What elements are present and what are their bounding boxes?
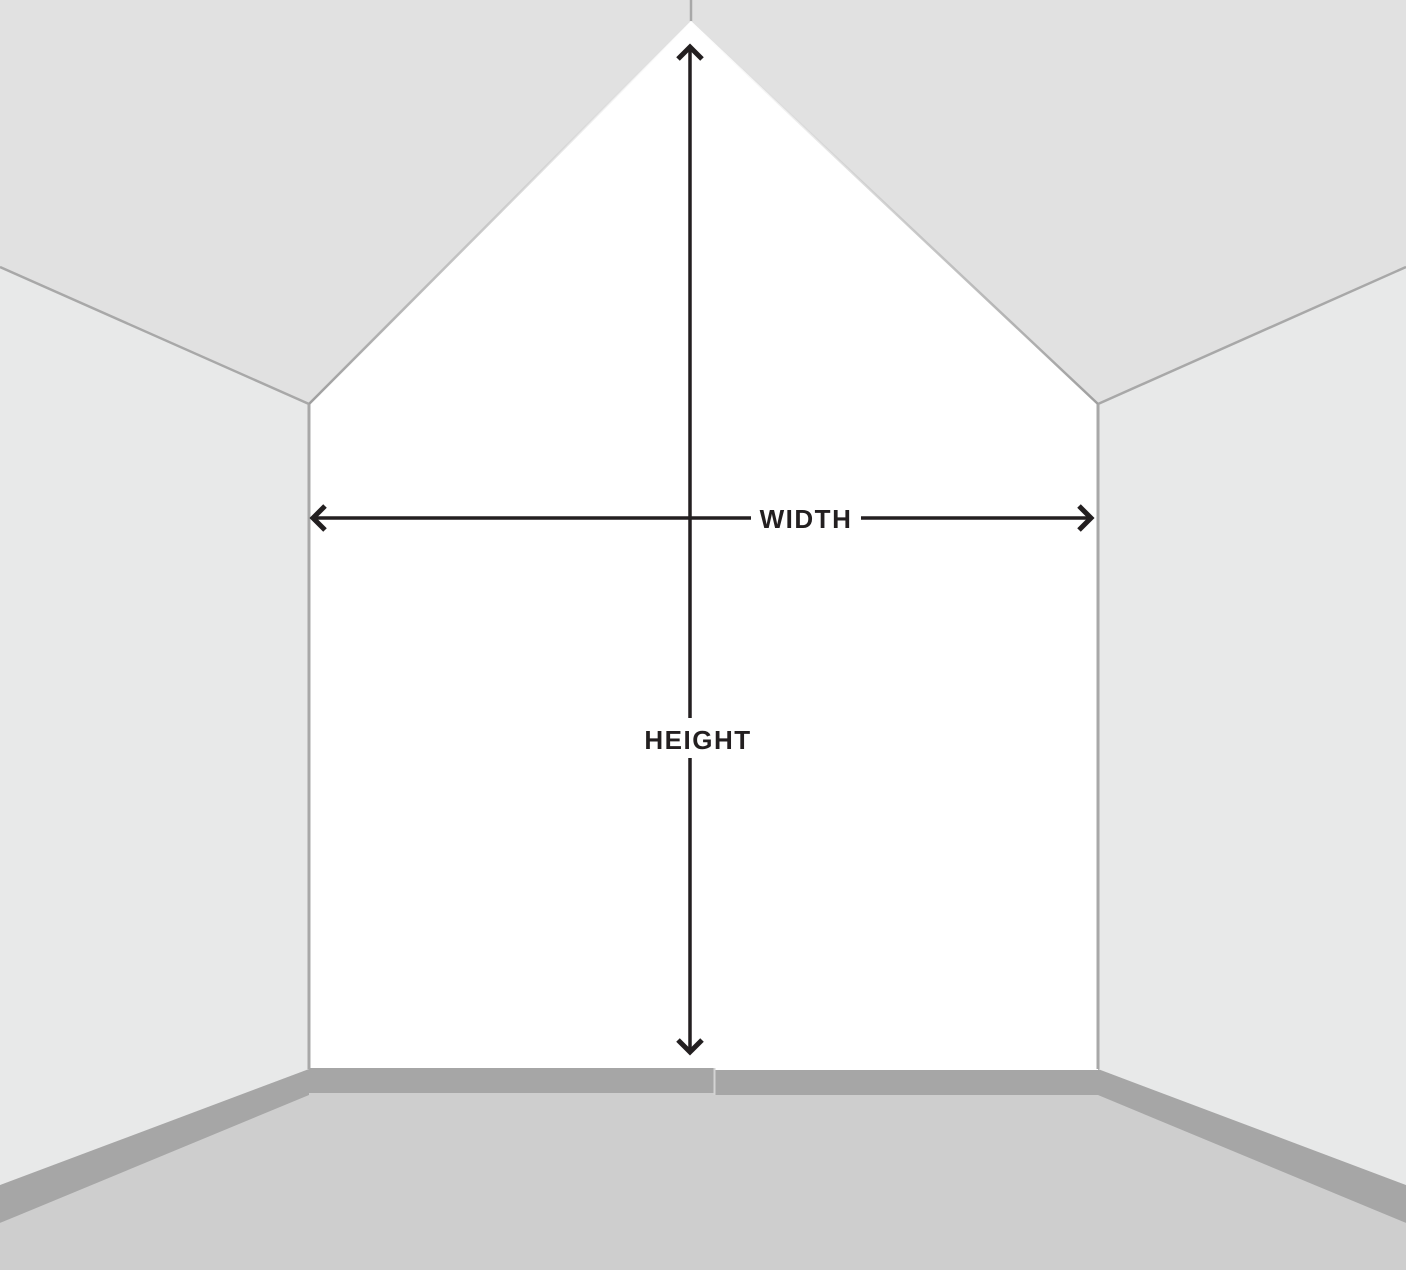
baseboard-panel-seam bbox=[714, 1068, 716, 1095]
room-scene: WIDTH HEIGHT bbox=[0, 0, 1406, 1270]
height-label: HEIGHT bbox=[644, 725, 751, 755]
baseboard-main-left-panel bbox=[309, 1068, 714, 1093]
wall-measurement-diagram: WIDTH HEIGHT bbox=[0, 0, 1406, 1270]
width-label: WIDTH bbox=[760, 504, 853, 534]
side-wall-left bbox=[0, 267, 309, 1185]
side-wall-right bbox=[1098, 267, 1406, 1185]
baseboard-main-right-panel bbox=[716, 1070, 1099, 1095]
